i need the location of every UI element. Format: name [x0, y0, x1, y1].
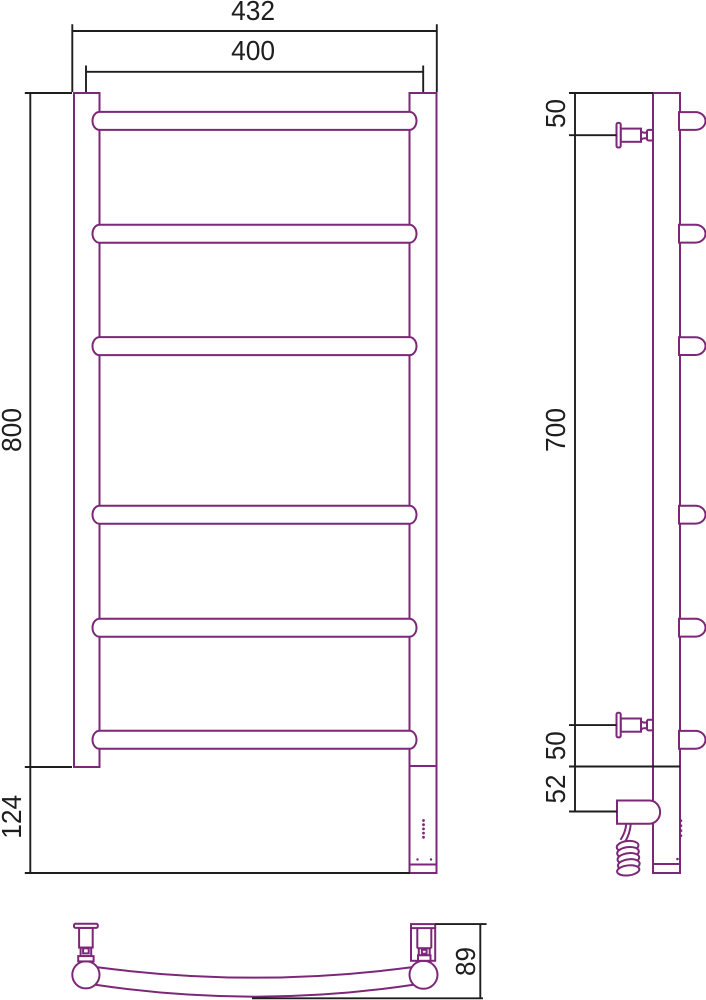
- svg-text:50: 50: [540, 731, 571, 760]
- svg-text:400: 400: [231, 35, 275, 66]
- svg-text:50: 50: [540, 99, 571, 128]
- svg-text:700: 700: [540, 408, 571, 452]
- svg-text:89: 89: [450, 947, 481, 976]
- svg-text:124: 124: [0, 795, 27, 839]
- svg-text:52: 52: [540, 775, 571, 804]
- svg-text:800: 800: [0, 408, 27, 452]
- svg-text:432: 432: [231, 0, 275, 26]
